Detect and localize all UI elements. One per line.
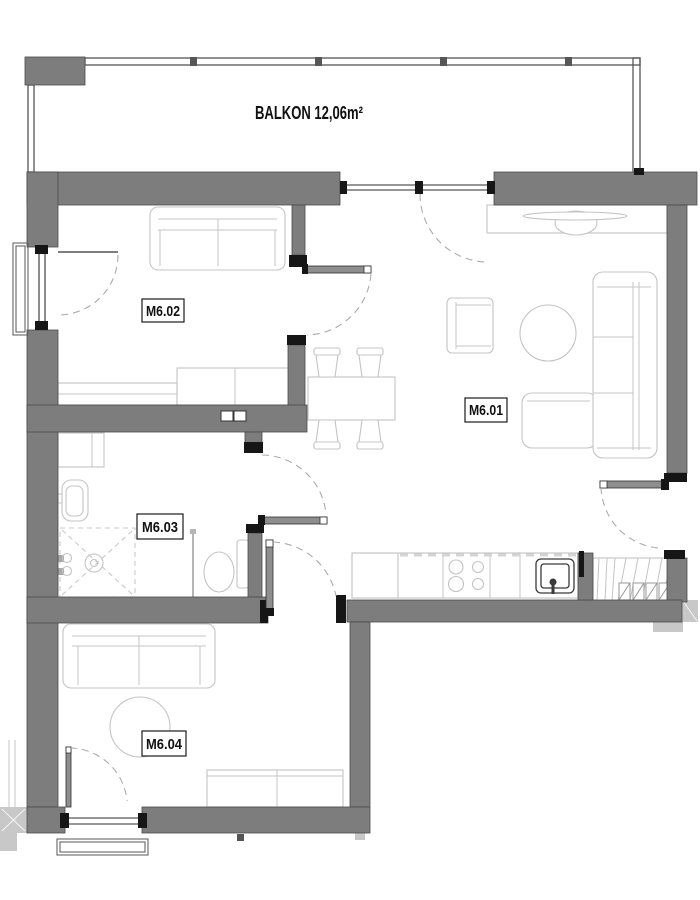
dining-chair [357, 420, 383, 449]
wall-m602-right-upper [292, 205, 305, 255]
wall-caps [221, 168, 687, 841]
floor-plan: BALKON 12,06m² [0, 0, 700, 900]
openings [13, 181, 669, 855]
wall-m603-m604-divider [27, 597, 268, 623]
wall-m604-right [350, 622, 370, 807]
door-arc [420, 194, 488, 262]
room-label-m602: M6.02 [142, 299, 184, 322]
wall-left-upper [27, 172, 58, 247]
wall-top-right [494, 172, 697, 205]
balcony-railing-top [85, 58, 640, 65]
door-arc [307, 274, 371, 335]
wall-bathroom-right [248, 533, 262, 597]
svg-text:M6.02: M6.02 [146, 304, 180, 320]
balcony-railing-right [633, 58, 640, 172]
shower-screen [190, 529, 196, 597]
room-m604-furniture [63, 624, 343, 807]
room-label-m601: M6.01 [465, 398, 507, 422]
balcony-door [340, 181, 495, 262]
wall-bottom-main [142, 807, 370, 833]
door-arc [58, 255, 118, 315]
balcony: BALKON 12,06m² [25, 57, 640, 172]
coffee-table [520, 305, 576, 361]
wall-m602-m603-divider [27, 405, 307, 432]
balcony-railing-left [28, 85, 34, 172]
sofa [150, 207, 285, 270]
kitchen [352, 553, 670, 601]
room-label-m604: M6.04 [142, 731, 186, 756]
shower [57, 528, 135, 597]
dining-area [308, 348, 395, 449]
wall-top-left [27, 172, 340, 205]
wall-left-main [27, 330, 58, 807]
door-arc [601, 487, 659, 548]
dining-chair [314, 420, 340, 449]
wall-bottom-left [27, 807, 65, 833]
sofa [63, 624, 215, 688]
kitchen-sink [536, 559, 574, 594]
m602-door [302, 264, 371, 335]
balcony-pillar [25, 57, 85, 85]
corner-sofa [522, 272, 657, 458]
door-arc [262, 455, 326, 514]
wardrobe [177, 368, 292, 405]
m601-entry-door [600, 479, 669, 548]
m602-window [13, 243, 118, 335]
m604-door [264, 540, 336, 616]
svg-text:M6.03: M6.03 [142, 520, 178, 536]
tv [523, 211, 627, 235]
shelf-unit [58, 383, 177, 405]
wall-joint-tick [634, 168, 644, 175]
m604-balcony-door [57, 747, 148, 855]
wall-kitchen-bottom [347, 600, 682, 622]
m603-door [258, 455, 327, 525]
toilet [204, 540, 249, 592]
shower-faucet [57, 554, 72, 576]
storage-shaft [593, 558, 670, 601]
wall-right-upper [667, 205, 687, 473]
washing-machine [58, 433, 104, 467]
svg-text:M6.01: M6.01 [469, 403, 503, 419]
wall-m602-right-lower [288, 345, 305, 407]
vent-shaft [221, 411, 246, 421]
armchair [447, 298, 493, 353]
dining-chair [314, 348, 340, 377]
dining-table [308, 377, 395, 420]
dining-chair [357, 348, 383, 377]
svg-text:M6.04: M6.04 [146, 737, 182, 753]
shaft-modules [619, 583, 670, 600]
door-arc [273, 542, 336, 596]
wall-right-lower [667, 558, 687, 602]
wall-tick-bottom [237, 834, 244, 841]
wardrobe [207, 770, 343, 807]
door-arc [70, 748, 127, 801]
shower-drain [85, 554, 103, 572]
balcony-label: BALKON 12,06m² [255, 103, 363, 123]
room-label-m603: M6.03 [137, 514, 183, 539]
